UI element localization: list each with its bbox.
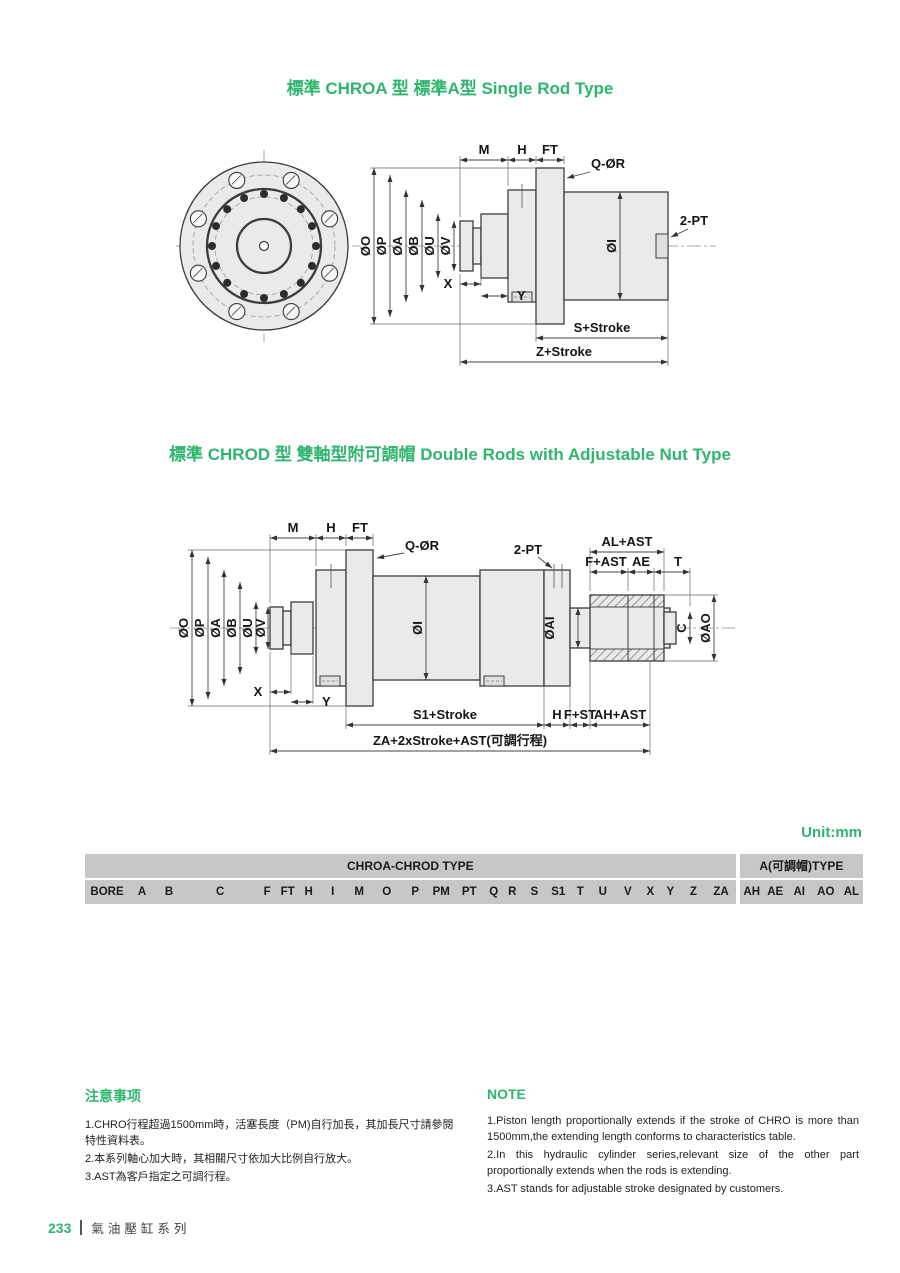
column-header: Y bbox=[660, 880, 680, 904]
dim-label-ft: FT bbox=[542, 142, 558, 157]
rod-collar bbox=[460, 221, 473, 271]
single-rod-drawing: M H FT Q-ØR 2-PT ØI ØO ØP ØA ØB ØU bbox=[176, 126, 721, 383]
port-notch bbox=[656, 234, 668, 258]
dim-label-h2: H bbox=[552, 707, 561, 722]
column-header: S bbox=[522, 880, 546, 904]
cylinder-body bbox=[373, 576, 480, 680]
dim-label-oa: ØA bbox=[390, 236, 405, 256]
dim-label-y: Y bbox=[322, 694, 331, 709]
column-header: ZA bbox=[706, 880, 735, 904]
dim-label-ae: AE bbox=[632, 554, 650, 569]
column-header: AE bbox=[764, 880, 787, 904]
dim-label-ah-ast: AH+AST bbox=[594, 707, 646, 722]
column-header: H bbox=[298, 880, 319, 904]
spec-table-wrap: CHROA-CHROD TYPE A(可調帽)TYPE BOREABCFFTHI… bbox=[85, 852, 863, 906]
dim-label-oo: ØO bbox=[358, 236, 373, 256]
notes-chinese-list: 1.CHRO行程超過1500mm時，活塞長度（PM)自行加長，其加長尺寸請參閱特… bbox=[85, 1118, 457, 1186]
dim-label-f-ast: F+AST bbox=[585, 554, 627, 569]
column-header: BORE bbox=[85, 880, 129, 904]
dim-label-s-stroke: S+Stroke bbox=[574, 320, 631, 335]
dim-label-oa: ØA bbox=[208, 618, 223, 638]
column-header: V bbox=[615, 880, 640, 904]
dim-label-oai: ØAI bbox=[542, 616, 557, 639]
dim-label-c: C bbox=[674, 623, 689, 633]
nut-hatch-bottom bbox=[590, 649, 664, 661]
column-header: FT bbox=[277, 880, 298, 904]
dim-label-m: M bbox=[288, 520, 299, 535]
group-header-chroa-chrod: CHROA-CHROD TYPE bbox=[85, 854, 736, 878]
dim-label-ob: ØB bbox=[406, 236, 421, 256]
dim-label-z-stroke: Z+Stroke bbox=[536, 344, 592, 359]
dim-label-al-ast: AL+AST bbox=[602, 534, 653, 549]
note-item: 1.Piston length proportionally extends i… bbox=[487, 1114, 859, 1146]
note-item: 2.本系列軸心加大時，其相關尺寸依加大比例自行放大。 bbox=[85, 1152, 457, 1168]
dim-label-za-stroke: ZA+2xStroke+AST(可調行程) bbox=[373, 733, 547, 748]
dim-label-q-or: Q-ØR bbox=[591, 156, 626, 171]
column-header: A bbox=[129, 880, 155, 904]
dim-label-m: M bbox=[479, 142, 490, 157]
rod-boss bbox=[481, 214, 508, 278]
column-header: U bbox=[590, 880, 615, 904]
series-title: 氣油壓缸系列 bbox=[91, 1218, 190, 1237]
flange bbox=[346, 550, 373, 706]
dim-label-op: ØP bbox=[374, 236, 389, 255]
column-header: B bbox=[155, 880, 183, 904]
dim-label-ov: ØV bbox=[253, 618, 268, 637]
double-rod-drawing: M H FT Q-ØR 2-PT AL+AST F+AST AE T bbox=[150, 494, 750, 775]
dim-label-q-or: Q-ØR bbox=[405, 538, 440, 553]
column-header: F bbox=[257, 880, 277, 904]
spec-table: CHROA-CHROD TYPE A(可調帽)TYPE BOREABCFFTHI… bbox=[85, 852, 863, 906]
column-header: P bbox=[401, 880, 429, 904]
column-header: O bbox=[372, 880, 401, 904]
table-column-header-row: BOREABCFFTHIMOPPMPTQRSS1TUVXYZZAAHAEAIAO… bbox=[85, 880, 863, 904]
dim-label-t: T bbox=[674, 554, 682, 569]
notes-chinese-heading: 注意事项 bbox=[85, 1086, 457, 1106]
single-rod-svg: M H FT Q-ØR 2-PT ØI ØO ØP ØA ØB ØU bbox=[176, 126, 721, 378]
column-header: PT bbox=[453, 880, 485, 904]
table-group-header-row: CHROA-CHROD TYPE A(可調帽)TYPE bbox=[85, 854, 863, 878]
dim-label-x: X bbox=[254, 684, 263, 699]
column-header: M bbox=[346, 880, 372, 904]
nut-hatch-top bbox=[590, 595, 664, 607]
dim-label-oi: ØI bbox=[604, 239, 619, 253]
note-item: 1.CHRO行程超過1500mm時，活塞長度（PM)自行加長，其加長尺寸請參閱特… bbox=[85, 1118, 457, 1150]
page-footer: 233 氣油壓缸系列 bbox=[48, 1218, 190, 1237]
dim-label-h: H bbox=[326, 520, 335, 535]
group-header-a-type: A(可調帽)TYPE bbox=[740, 854, 863, 878]
column-header: S1 bbox=[546, 880, 570, 904]
catalog-page: 標準 CHROA 型 標準A型 Single Rod Type bbox=[0, 0, 900, 1273]
column-header: X bbox=[640, 880, 660, 904]
column-header: T bbox=[570, 880, 590, 904]
column-header: AO bbox=[812, 880, 840, 904]
section-title-single-rod: 標準 CHROA 型 標準A型 Single Rod Type bbox=[0, 74, 900, 99]
dim-label-ft: FT bbox=[352, 520, 368, 535]
notes-english-heading: NOTE bbox=[487, 1086, 859, 1102]
column-header: Q bbox=[485, 880, 502, 904]
dim-label-op: ØP bbox=[192, 618, 207, 637]
double-rod-svg: M H FT Q-ØR 2-PT AL+AST F+AST AE T bbox=[150, 494, 750, 770]
dim-label-oo: ØO bbox=[176, 618, 191, 638]
side-view-double: M H FT Q-ØR 2-PT AL+AST F+AST AE T bbox=[170, 520, 735, 755]
side-view: M H FT Q-ØR 2-PT ØI ØO ØP ØA ØB ØU bbox=[358, 142, 716, 366]
unit-label: Unit:mm bbox=[801, 824, 862, 841]
front-view bbox=[176, 150, 360, 342]
dim-label-s1-stroke: S1+Stroke bbox=[413, 707, 477, 722]
dim-label-x: X bbox=[444, 276, 453, 291]
dim-label-2pt: 2-PT bbox=[680, 213, 708, 228]
column-header: AI bbox=[787, 880, 812, 904]
dim-label-oi: ØI bbox=[410, 621, 425, 635]
section-title-double-rod: 標準 CHROD 型 雙軸型附可調帽 Double Rods with Adju… bbox=[0, 440, 900, 465]
column-header: AH bbox=[740, 880, 764, 904]
rod-boss bbox=[291, 602, 313, 654]
dim-label-y: Y bbox=[517, 288, 526, 303]
note-item: 2.In this hydraulic cylinder series,rele… bbox=[487, 1148, 859, 1180]
column-header: I bbox=[319, 880, 346, 904]
rod-groove bbox=[283, 611, 291, 645]
dim-label-ov: ØV bbox=[438, 236, 453, 255]
column-header: Z bbox=[680, 880, 706, 904]
rod-groove bbox=[473, 228, 481, 264]
notes-chinese: 注意事项 1.CHRO行程超過1500mm時，活塞長度（PM)自行加長，其加長尺… bbox=[85, 1086, 457, 1188]
column-header: AL bbox=[840, 880, 863, 904]
dim-label-oao: ØAO bbox=[698, 613, 713, 643]
column-header: R bbox=[502, 880, 522, 904]
note-item: 3.AST stands for adjustable stroke desig… bbox=[487, 1182, 859, 1198]
dim-label-ou: ØU bbox=[422, 236, 437, 256]
column-header: C bbox=[183, 880, 257, 904]
dim-label-ob: ØB bbox=[224, 618, 239, 638]
head-block bbox=[480, 570, 544, 686]
dim-label-h: H bbox=[517, 142, 526, 157]
dim-label-f-st: F+ST bbox=[564, 707, 596, 722]
dim-label-2pt: 2-PT bbox=[514, 542, 542, 557]
page-number: 233 bbox=[48, 1220, 71, 1236]
column-header: PM bbox=[429, 880, 453, 904]
notes-english-list: 1.Piston length proportionally extends i… bbox=[487, 1114, 859, 1198]
footer-divider bbox=[80, 1220, 82, 1235]
flange bbox=[536, 168, 564, 324]
rod-collar bbox=[270, 607, 283, 649]
note-item: 3.AST為客戶指定之可調行程。 bbox=[85, 1170, 457, 1186]
notes-english: NOTE 1.Piston length proportionally exte… bbox=[487, 1086, 859, 1200]
